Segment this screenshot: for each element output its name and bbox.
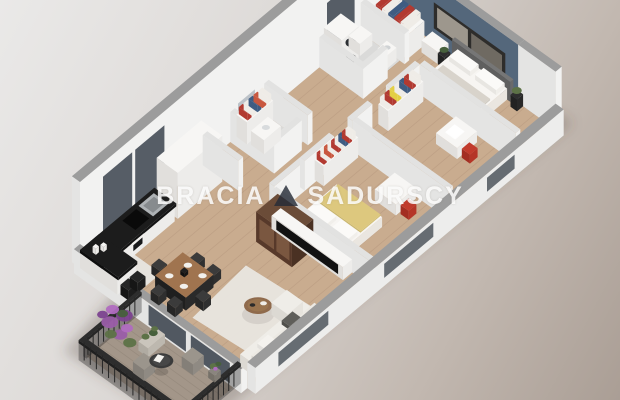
- floorplan-render: BRACIA SADURSCY: [0, 0, 620, 400]
- apartment-3d-floorplan: [0, 0, 620, 400]
